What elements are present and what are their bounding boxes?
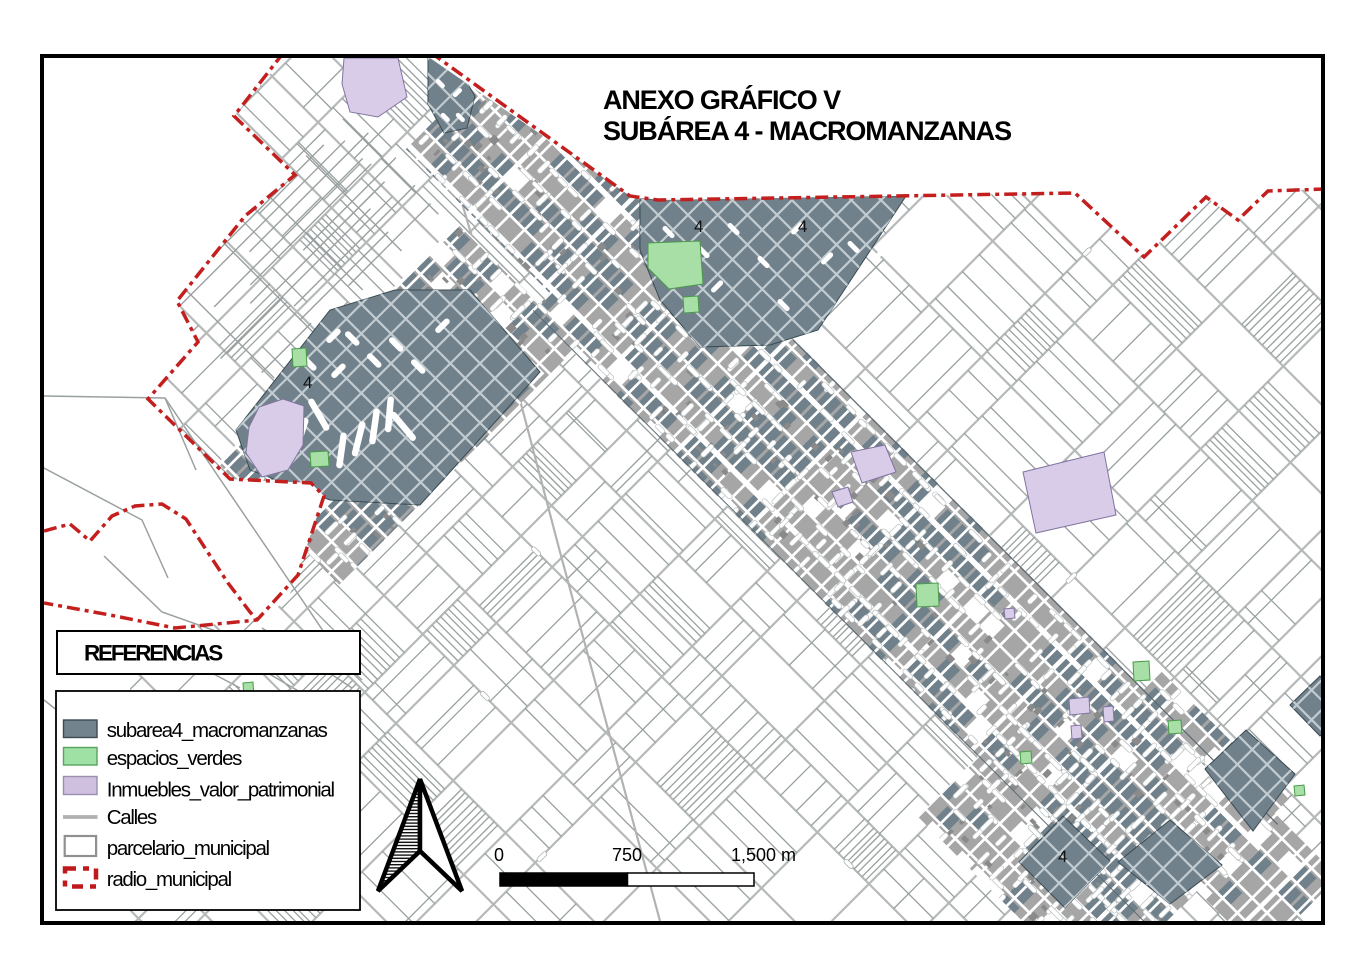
svg-text:4: 4 — [303, 373, 312, 392]
svg-text:espacios_verdes: espacios_verdes — [107, 747, 242, 770]
svg-text:SUBÁREA 4 - MACROMANZANAS: SUBÁREA 4 - MACROMANZANAS — [603, 115, 1011, 146]
svg-text:4: 4 — [694, 217, 703, 236]
svg-text:parcelario_municipal: parcelario_municipal — [107, 837, 270, 860]
svg-text:subarea4_macromanzanas: subarea4_macromanzanas — [107, 719, 328, 742]
svg-text:radio_municipal: radio_municipal — [107, 868, 232, 891]
svg-text:1,500 m: 1,500 m — [731, 845, 796, 865]
svg-text:Inmuebles_valor_patrimonial: Inmuebles_valor_patrimonial — [107, 779, 335, 802]
svg-text:4: 4 — [798, 217, 807, 236]
svg-text:0: 0 — [494, 845, 504, 865]
svg-text:ANEXO GRÁFICO V: ANEXO GRÁFICO V — [603, 84, 841, 115]
svg-text:4: 4 — [1058, 847, 1067, 866]
svg-text:Calles: Calles — [107, 806, 157, 829]
svg-text:REFERENCIAS: REFERENCIAS — [84, 641, 223, 666]
svg-text:750: 750 — [612, 845, 642, 865]
